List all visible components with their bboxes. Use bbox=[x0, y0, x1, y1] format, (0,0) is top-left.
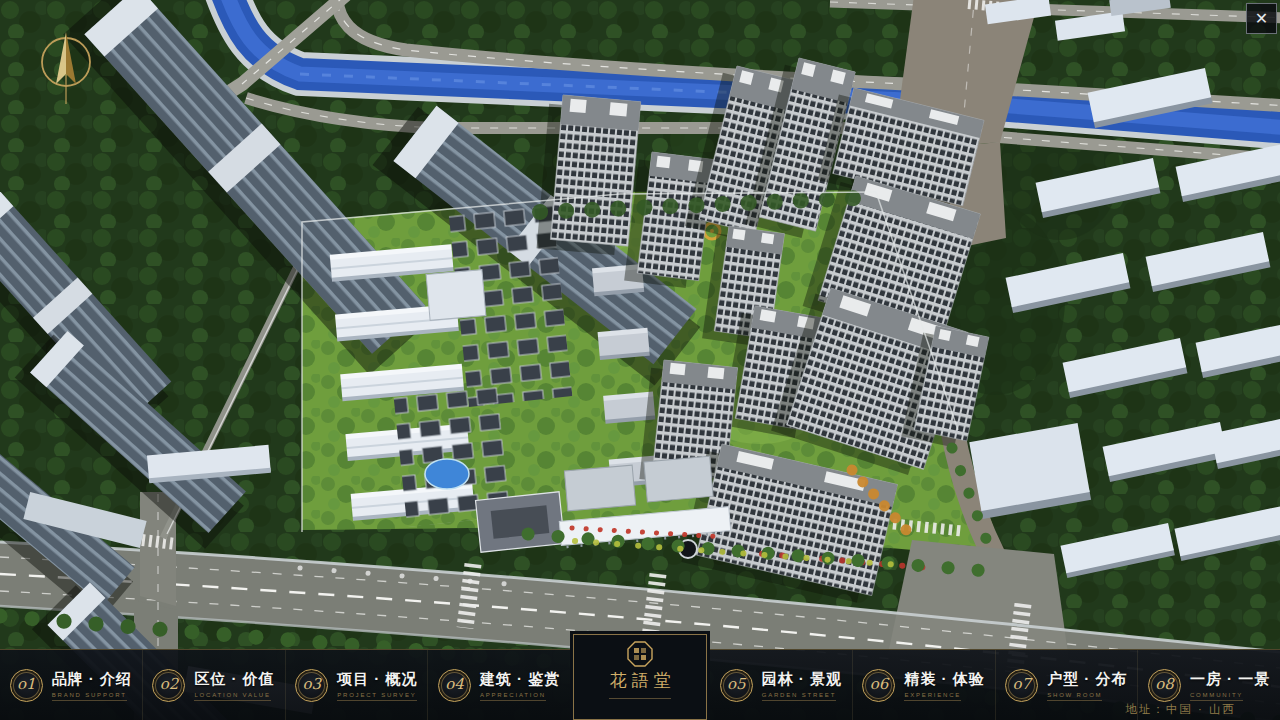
menu-label-zh: 园林 · 景观 bbox=[762, 670, 842, 689]
menu-labels: 户型 · 分布 SHOW ROOM bbox=[1047, 670, 1127, 701]
menu-item-project-survey[interactable]: o3 项目 · 概况 PROJECT SURVEY bbox=[285, 650, 428, 720]
menu-item-garden-landscape[interactable]: o5 园林 · 景观 GARDEN STREET bbox=[710, 650, 852, 720]
menu-number: o7 bbox=[1012, 675, 1031, 693]
menu-labels: 一房 · 一景 COMMUNITY bbox=[1190, 670, 1270, 701]
menu-number: o5 bbox=[727, 675, 746, 693]
menu-badge-4: o4 bbox=[438, 669, 471, 702]
menu-label-en: BRAND SUPPORT bbox=[52, 692, 127, 701]
menu-label-zh: 精装 · 体验 bbox=[904, 670, 984, 689]
presentation-window: ✕ o1 品牌 · 介绍 BRAND SUPPORT o2 区位 · 价值 LO… bbox=[0, 0, 1280, 720]
brand-caption-rule bbox=[609, 698, 671, 699]
menu-label-zh: 建筑 · 鉴赏 bbox=[480, 670, 560, 689]
brand-logo-panel[interactable]: 花語堂 bbox=[573, 634, 707, 720]
menu-number: o1 bbox=[17, 675, 36, 693]
menu-labels: 园林 · 景观 GARDEN STREET bbox=[762, 670, 842, 701]
menu-item-location-value[interactable]: o2 区位 · 价值 LOCATION VALUE bbox=[142, 650, 285, 720]
menu-badge-6: o6 bbox=[862, 669, 895, 702]
menu-badge-3: o3 bbox=[295, 669, 328, 702]
brand-name: 花語堂 bbox=[605, 669, 676, 692]
menu-label-en: APPRECIATION bbox=[480, 692, 546, 701]
menu-number: o4 bbox=[445, 675, 464, 693]
menu-label-en: SHOW ROOM bbox=[1047, 692, 1102, 701]
menu-label-en: COMMUNITY bbox=[1190, 692, 1243, 701]
menu-label-zh: 项目 · 概况 bbox=[337, 670, 417, 689]
menu-number: o6 bbox=[870, 675, 889, 693]
menu-item-architecture[interactable]: o4 建筑 · 鉴赏 APPRECIATION bbox=[427, 650, 570, 720]
menu-label-zh: 区位 · 价值 bbox=[194, 670, 274, 689]
menu-item-brand-intro[interactable]: o1 品牌 · 介绍 BRAND SUPPORT bbox=[0, 650, 142, 720]
close-icon: ✕ bbox=[1255, 9, 1268, 28]
north-compass-icon bbox=[36, 28, 96, 106]
menu-labels: 品牌 · 介绍 BRAND SUPPORT bbox=[52, 670, 132, 701]
menu-item-floorplan-distribution[interactable]: o7 户型 · 分布 SHOW ROOM bbox=[995, 650, 1138, 720]
menu-number: o2 bbox=[160, 675, 179, 693]
menu-badge-1: o1 bbox=[10, 669, 43, 702]
project-address: 地址：中国 · 山西 bbox=[1125, 702, 1236, 717]
menu-label-en: PROJECT SURVEY bbox=[337, 692, 416, 701]
menu-number: o8 bbox=[1155, 675, 1174, 693]
menu-labels: 项目 · 概况 PROJECT SURVEY bbox=[337, 670, 417, 701]
brand-seal-icon bbox=[627, 641, 653, 667]
menu-label-zh: 户型 · 分布 bbox=[1047, 670, 1127, 689]
menu-labels: 区位 · 价值 LOCATION VALUE bbox=[194, 670, 274, 701]
menu-label-en: EXPERIENCE bbox=[904, 692, 961, 701]
menu-label-zh: 品牌 · 介绍 bbox=[52, 670, 132, 689]
menu-labels: 建筑 · 鉴赏 APPRECIATION bbox=[480, 670, 560, 701]
menu-item-interior-experience[interactable]: o6 精装 · 体验 EXPERIENCE bbox=[852, 650, 995, 720]
menu-label-zh: 一房 · 一景 bbox=[1190, 670, 1270, 689]
site-plan-render bbox=[0, 0, 1280, 720]
menu-group-left: o1 品牌 · 介绍 BRAND SUPPORT o2 区位 · 价值 LOCA… bbox=[0, 650, 570, 720]
menu-labels: 精装 · 体验 EXPERIENCE bbox=[904, 670, 984, 701]
menu-label-en: LOCATION VALUE bbox=[194, 692, 270, 701]
menu-badge-8: o8 bbox=[1148, 669, 1181, 702]
menu-badge-7: o7 bbox=[1005, 669, 1038, 702]
menu-label-en: GARDEN STREET bbox=[762, 692, 836, 701]
close-button[interactable]: ✕ bbox=[1246, 3, 1277, 34]
menu-badge-5: o5 bbox=[720, 669, 753, 702]
menu-badge-2: o2 bbox=[152, 669, 185, 702]
menu-number: o3 bbox=[302, 675, 321, 693]
